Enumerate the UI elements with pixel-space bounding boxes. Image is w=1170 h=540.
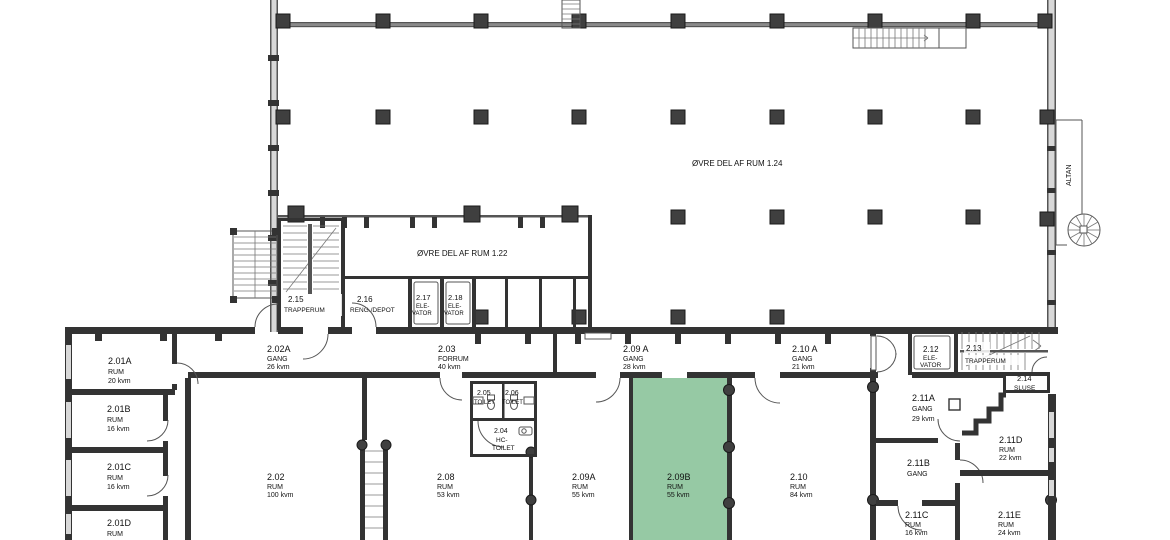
room-2-10a-area: 21 kvm — [792, 364, 815, 371]
room-2-02-type: RUM — [267, 484, 283, 491]
upper-room-1-24-label: ØVRE DEL AF RUM 1.24 — [692, 159, 783, 168]
room-2-09a-gang-number: 2.09 A — [623, 344, 649, 354]
room-2-09b-highlight[interactable] — [633, 378, 728, 540]
door-arc — [938, 419, 960, 441]
service-cells: 2.16 RENG./DEPOT 2.17 ELE- VATOR 2.18 EL… — [350, 279, 576, 327]
room-2-03-number: 2.03 — [438, 344, 456, 354]
duct-wall — [357, 378, 391, 540]
altan-balcony: ALTAN — [1056, 120, 1100, 246]
room-2-01b-number: 2.01B — [107, 404, 131, 414]
room-2-09a-type: RUM — [572, 484, 588, 491]
corridor-double-door — [870, 330, 896, 374]
room-2-17-type-2: VATOR — [412, 311, 432, 317]
hc-fixture-knob — [522, 429, 526, 433]
room-2-03-type: FORRUM — [438, 356, 469, 363]
door-arc — [440, 378, 462, 400]
room-2-10a-type: GANG — [792, 356, 813, 363]
room-2-01a-number: 2.01A — [108, 356, 132, 366]
room-2-10-area: 84 kvm — [790, 492, 813, 499]
elevator-2-18-cab — [446, 282, 470, 324]
room-2-11e-number: 2.11E — [998, 510, 1021, 520]
room-2-06-type: TOILET — [502, 400, 523, 406]
room-2-11a-number: 2.11A — [912, 393, 935, 403]
room-2-01b-area: 16 kvm — [107, 426, 130, 433]
main-rooms: 2.05 TOILET 2.06 TOILET 2.04 HC- TOILET … — [267, 378, 879, 540]
top-ladder-stair — [562, 0, 580, 28]
stairwell-2-15: 2.15 TRAPPERUM — [277, 218, 345, 330]
room-2-18-type-2: VATOR — [444, 311, 464, 317]
room-2-15-number: 2.15 — [288, 295, 304, 304]
room-2-05-number: 2.05 — [477, 390, 491, 397]
door-arc — [755, 378, 780, 403]
room-2-01b-type: RUM — [107, 417, 123, 424]
toilet-block: 2.05 TOILET 2.06 TOILET 2.04 HC- TOILET — [470, 381, 537, 457]
room-2-02-number: 2.02 — [267, 472, 285, 482]
room-2-11c-area: 16 kvm — [905, 530, 928, 537]
room-2-11c-type: RUM — [905, 522, 921, 529]
room-2-04-number: 2.04 — [494, 428, 508, 435]
door-arc — [147, 420, 168, 441]
room-2-11d-area: 22 kvm — [999, 455, 1022, 462]
east-wing: 2.12 ELE- VATOR 2.13 — [876, 330, 1057, 540]
room-2-14-type: SLUSE — [1014, 385, 1036, 392]
hc-fixture — [519, 427, 532, 435]
room-2-05-type: TOILET — [474, 400, 495, 406]
room-2-12-type-2: VATOR — [920, 362, 942, 369]
room-2-01d-number: 2.01D — [107, 518, 132, 528]
upper-room-1-22-label: ØVRE DEL AF RUM 1.22 — [417, 249, 508, 258]
elevator-2-17-cab — [414, 282, 438, 324]
door-arc — [303, 334, 328, 359]
room-2-11d-type: RUM — [999, 447, 1015, 454]
room-2-04-type-1: HC- — [496, 437, 508, 444]
room-2-09b-area: 55 kvm — [667, 492, 690, 499]
floor-plan-svg: ØVRE DEL AF RUM 1.24 ALTAN ØVRE DEL — [0, 0, 1170, 540]
elevator-2-12: 2.12 ELE- VATOR — [908, 330, 958, 375]
room-2-09b-type: RUM — [667, 484, 683, 491]
room-2-18-type-1: ELE- — [448, 304, 461, 310]
room-2-17-number: 2.17 — [416, 293, 431, 302]
room-2-09a-gang-area: 28 kvm — [623, 364, 646, 371]
room-2-03-area: 40 kvm — [438, 364, 461, 371]
room-2-08-area: 53 kvm — [437, 492, 460, 499]
shaft-symbol — [949, 399, 960, 410]
room-2-08-number: 2.08 — [437, 472, 455, 482]
room-2-09a-number: 2.09A — [572, 472, 596, 482]
room-2-17-type-1: ELE- — [416, 304, 429, 310]
sink — [524, 397, 534, 404]
room-2-08-type: RUM — [437, 484, 453, 491]
door-leaf — [585, 333, 611, 339]
room-2-01a-type: RUM — [108, 369, 124, 376]
room-2-12-number: 2.12 — [923, 345, 939, 354]
stairwell-2-13: 2.13 TRAPPERUM — [960, 332, 1048, 370]
room-2-06-number: 2.06 — [505, 390, 519, 397]
room-2-09a-area: 55 kvm — [572, 492, 595, 499]
floor-plan: ØVRE DEL AF RUM 1.24 ALTAN ØVRE DEL — [0, 0, 1170, 540]
left-wing: 2.01A RUM 20 kvm 2.01B RUM 16 kvm 2.01C … — [65, 327, 198, 540]
room-2-11c-number: 2.11C — [905, 510, 929, 520]
room-2-12-type-1: ELE- — [923, 355, 937, 362]
room-2-11b-number: 2.11B — [907, 458, 930, 468]
room-2-02a-type: GANG — [267, 356, 288, 363]
top-horizontal-stair — [853, 28, 966, 48]
room-2-18-number: 2.18 — [448, 293, 463, 302]
room-2-11e-type: RUM — [998, 522, 1014, 529]
room-2-11b-type: GANG — [907, 471, 928, 478]
room-2-02-area: 100 kvm — [267, 492, 294, 499]
room-2-01d-type: RUM — [107, 531, 123, 538]
room-2-02a-number: 2.02A — [267, 344, 291, 354]
strip-1-22: ØVRE DEL AF RUM 1.22 2.15 TRA — [230, 206, 592, 332]
upper-hall: ØVRE DEL AF RUM 1.24 — [268, 0, 1056, 334]
room-2-02a-area: 26 kvm — [267, 364, 290, 371]
room-2-11d-number: 2.11D — [999, 435, 1023, 445]
room-2-09b-number: 2.09B — [667, 472, 691, 482]
room-2-10-number: 2.10 — [790, 472, 808, 482]
room-2-13-type: TRAPPERUM — [965, 358, 1006, 365]
room-2-09a-gang-type: GANG — [623, 356, 644, 363]
room-2-01c-area: 16 kvm — [107, 484, 130, 491]
stepped-wall — [962, 395, 1006, 433]
room-2-15-type: TRAPPERUM — [284, 307, 325, 314]
room-2-01a-area: 20 kvm — [108, 378, 131, 385]
altan-label: ALTAN — [1066, 164, 1073, 186]
room-2-16-type: RENG./DEPOT — [350, 307, 395, 314]
room-2-04-type-2: TOILET — [492, 445, 515, 452]
room-2-14-number: 2.14 — [1017, 374, 1032, 383]
door-arc — [1032, 357, 1047, 372]
door-arc — [596, 378, 620, 402]
room-2-11a-type: GANG — [912, 406, 933, 413]
door-arc — [147, 475, 168, 496]
room-2-13-number: 2.13 — [966, 344, 982, 353]
room-2-01c-type: RUM — [107, 475, 123, 482]
room-2-10a-number: 2.10 A — [792, 344, 818, 354]
room-2-10-type: RUM — [790, 484, 806, 491]
room-2-11a-area: 29 kvm — [912, 416, 935, 423]
room-2-16-number: 2.16 — [357, 295, 373, 304]
room-2-11e-area: 24 kvm — [998, 530, 1021, 537]
room-2-01c-number: 2.01C — [107, 462, 132, 472]
